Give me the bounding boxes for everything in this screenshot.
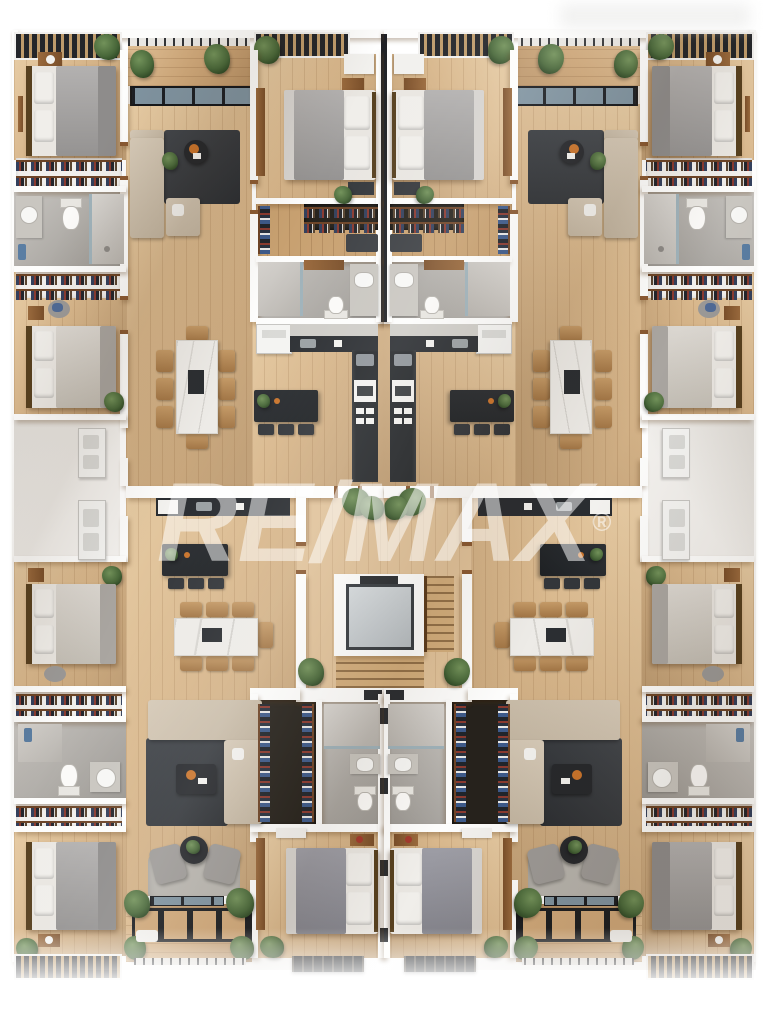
hanging-clothes xyxy=(16,274,122,285)
stove-burner xyxy=(356,408,364,414)
dining-chair xyxy=(566,656,588,671)
counter-item xyxy=(426,340,434,347)
wall xyxy=(14,186,126,192)
unit-separation-line xyxy=(384,34,387,322)
book xyxy=(193,153,201,159)
appliance-door xyxy=(482,330,506,338)
stove-burner xyxy=(394,408,402,414)
coffee-table xyxy=(552,764,592,794)
bar-stool xyxy=(278,424,294,435)
registered-trademark-symbol: ® xyxy=(592,507,611,538)
closet-shelf xyxy=(646,272,752,298)
potted-plant xyxy=(204,44,230,74)
nightstand xyxy=(28,306,44,320)
shower-drain xyxy=(104,246,110,252)
pillow xyxy=(346,853,372,886)
kitchen-sink xyxy=(452,339,468,348)
toilet xyxy=(690,764,708,788)
shower-glass xyxy=(324,746,380,749)
wall xyxy=(640,50,648,146)
bed xyxy=(652,326,742,408)
pillow xyxy=(34,885,54,916)
hanging-clothes xyxy=(646,289,752,300)
bathroom-shelf xyxy=(424,260,464,270)
toilet xyxy=(424,296,440,314)
floor-plan-render: { "image": { "kind": "3d-top-down-floor-… xyxy=(0,0,768,1024)
book xyxy=(561,778,570,784)
dining-chair xyxy=(495,622,510,648)
bar-stool xyxy=(494,424,510,435)
book xyxy=(198,778,207,784)
dining-chair xyxy=(218,350,235,372)
clothes-rack xyxy=(498,206,510,254)
pillow xyxy=(584,204,596,216)
hanging-clothes xyxy=(390,222,464,233)
door-jamb xyxy=(510,210,518,214)
door-jamb xyxy=(120,176,128,180)
table-centerpiece xyxy=(188,370,204,394)
potted-plant xyxy=(162,152,178,170)
dining-chair xyxy=(232,656,254,671)
duvet xyxy=(422,848,472,934)
dining-chair xyxy=(206,656,228,671)
balcony-pergola-slats xyxy=(14,954,122,980)
dining-chair xyxy=(560,326,582,341)
kitchen-backsplash xyxy=(390,324,478,336)
bed xyxy=(652,584,742,664)
shower-glass xyxy=(465,262,468,316)
pillow xyxy=(344,96,370,130)
towel xyxy=(736,728,744,742)
towel xyxy=(24,728,32,742)
lamp xyxy=(715,936,723,944)
dining-chair xyxy=(156,406,173,428)
pillow xyxy=(524,748,536,760)
shower-drain xyxy=(658,246,664,252)
hanging-clothes xyxy=(304,222,378,233)
dining-chair xyxy=(218,378,235,400)
potted-plant xyxy=(94,34,120,60)
sink xyxy=(394,757,412,772)
toilet xyxy=(62,206,80,230)
toilet xyxy=(688,206,706,230)
sofa xyxy=(130,138,164,238)
kitchen-sink xyxy=(394,354,412,366)
closet-shelf xyxy=(646,158,752,188)
pouf xyxy=(702,666,724,682)
closet-bench xyxy=(390,234,422,252)
toilet xyxy=(357,792,373,811)
decor-item xyxy=(356,836,363,843)
potted-plant xyxy=(130,50,154,78)
hanging-clothes xyxy=(646,160,752,171)
decor-bowl xyxy=(488,398,494,404)
pillow xyxy=(34,331,54,361)
pillow xyxy=(34,589,54,618)
decor-bowl xyxy=(274,398,280,404)
headboard xyxy=(736,326,742,408)
door-jamb xyxy=(120,142,128,146)
hanging-clothes xyxy=(16,289,122,300)
sink xyxy=(96,768,116,788)
stove-burner xyxy=(356,418,364,424)
stove-burner xyxy=(366,408,374,414)
toilet xyxy=(60,764,78,788)
door-frame-mark xyxy=(384,860,388,876)
clothes-rack xyxy=(390,204,464,230)
dining-chair xyxy=(533,350,550,372)
bed xyxy=(26,584,116,664)
potted-plant xyxy=(260,936,284,958)
potted-plant xyxy=(124,890,150,918)
clothes-pile xyxy=(705,303,716,312)
dining-chair xyxy=(156,378,173,400)
headboard xyxy=(372,92,376,178)
pouf xyxy=(44,666,66,682)
dining-chair xyxy=(540,656,562,671)
door-jamb xyxy=(120,330,128,334)
door-jamb xyxy=(640,330,648,334)
pillow xyxy=(34,848,54,879)
potted-plant xyxy=(230,936,254,960)
glass-sliding-door xyxy=(544,896,618,906)
dining-chair xyxy=(533,406,550,428)
headboard xyxy=(736,66,742,156)
balcony-pergola-slats xyxy=(646,954,754,980)
hanging-clothes xyxy=(646,694,752,705)
balcony-bench xyxy=(136,930,158,942)
pillow xyxy=(714,72,734,104)
bed xyxy=(392,90,484,180)
shower xyxy=(258,262,300,316)
kitchen-sink xyxy=(300,339,316,348)
hanging-clothes xyxy=(646,806,752,817)
pillow xyxy=(714,110,734,142)
wall xyxy=(14,686,126,692)
sofa xyxy=(148,700,262,740)
clothes-rack xyxy=(304,204,378,230)
clothes-rack xyxy=(454,704,466,822)
wall xyxy=(642,266,754,272)
clothes-rack xyxy=(258,206,270,254)
pillow xyxy=(714,625,734,654)
headboard xyxy=(26,326,32,408)
decor-bowl xyxy=(186,770,196,780)
towel xyxy=(742,244,750,260)
pillow xyxy=(346,892,372,925)
sink xyxy=(20,206,38,224)
dining-chair xyxy=(514,602,536,617)
wall xyxy=(642,686,754,692)
door-jamb xyxy=(640,176,648,180)
closet-shelf xyxy=(646,804,752,828)
closet-shelf xyxy=(646,692,752,718)
dining-chair xyxy=(258,622,273,648)
pillow xyxy=(714,368,734,398)
dresser xyxy=(276,828,306,838)
shower xyxy=(644,194,676,264)
headboard xyxy=(26,842,32,930)
wardrobe xyxy=(256,88,265,176)
sofa xyxy=(604,138,638,238)
hanging-clothes xyxy=(16,694,122,705)
dining-chair xyxy=(156,350,173,372)
background-smudge xyxy=(560,4,750,28)
bed xyxy=(390,848,482,934)
glass-sliding-door xyxy=(130,86,252,106)
kitchen-island xyxy=(450,390,514,422)
lamp xyxy=(713,55,722,64)
hanging-clothes xyxy=(16,806,122,817)
bed xyxy=(26,66,116,156)
balcony-railing xyxy=(128,38,250,46)
closet-shelf xyxy=(16,804,122,828)
dining-chair xyxy=(186,434,208,449)
closet-bench xyxy=(346,234,378,252)
watermark-text: RE/MAX xyxy=(157,458,593,587)
pillow xyxy=(232,748,244,760)
headboard xyxy=(374,850,378,932)
bench xyxy=(745,96,750,132)
wall xyxy=(14,414,126,420)
wall xyxy=(510,210,518,322)
door-frame-mark xyxy=(384,778,388,794)
sink xyxy=(354,272,374,288)
clothes-rack xyxy=(258,704,270,822)
potted-plant xyxy=(298,658,324,686)
bed xyxy=(652,842,742,930)
door-frame-mark xyxy=(384,928,388,942)
shower-glass xyxy=(388,746,444,749)
balcony-railing xyxy=(518,38,640,46)
bed xyxy=(284,90,376,180)
wall xyxy=(642,414,754,420)
clothes-rack xyxy=(498,704,510,822)
hanging-clothes xyxy=(646,274,752,285)
wardrobe xyxy=(256,838,265,930)
stove-burner xyxy=(394,418,402,424)
wall xyxy=(250,824,384,832)
clothes-pile xyxy=(52,303,63,312)
door-jamb xyxy=(250,210,258,214)
door-jamb xyxy=(250,180,258,184)
bed xyxy=(652,66,742,156)
hanging-clothes xyxy=(16,160,122,171)
toilet-tank xyxy=(58,786,80,796)
shower-glass xyxy=(89,194,92,264)
pillow xyxy=(714,589,734,618)
bed xyxy=(286,848,378,934)
duvet xyxy=(294,90,344,180)
staircase xyxy=(336,654,424,688)
shower xyxy=(324,704,380,746)
door-jamb xyxy=(640,142,648,146)
plant-on-island xyxy=(257,394,270,408)
table-centerpiece xyxy=(546,628,566,642)
wardrobe xyxy=(503,88,512,176)
juliet-balcony-glazing xyxy=(404,956,476,972)
dresser xyxy=(344,54,374,74)
stove-burner xyxy=(366,418,374,424)
appliance-door xyxy=(669,435,685,449)
door-jamb xyxy=(640,296,648,300)
potted-plant xyxy=(226,888,254,918)
glass-sliding-door xyxy=(150,896,224,906)
appliance-door xyxy=(262,330,286,338)
dining-chair xyxy=(533,378,550,400)
closet-shelf xyxy=(16,692,122,718)
oven-window xyxy=(395,386,411,396)
door-jamb xyxy=(510,180,518,184)
sink xyxy=(356,757,374,772)
bed xyxy=(26,326,116,408)
plant-on-table xyxy=(186,840,200,854)
plant-on-island xyxy=(498,394,511,408)
nightstand xyxy=(724,306,740,320)
bar-stool xyxy=(298,424,314,435)
dresser xyxy=(394,54,424,74)
balcony-bench xyxy=(610,930,632,942)
wardrobe xyxy=(503,838,512,930)
stove-burner xyxy=(404,408,412,414)
shower-glass xyxy=(300,262,303,316)
pillow xyxy=(398,136,424,170)
toilet xyxy=(395,792,411,811)
lamp xyxy=(45,936,53,944)
dining-chair xyxy=(232,602,254,617)
counter-item xyxy=(334,340,342,347)
coffee-table xyxy=(176,764,216,794)
bar-stool xyxy=(474,424,490,435)
book xyxy=(567,153,575,159)
duvet xyxy=(296,848,346,934)
shower xyxy=(468,262,510,316)
refrigerator xyxy=(256,324,292,354)
table-centerpiece xyxy=(564,370,580,394)
remax-watermark: RE/MAX® xyxy=(0,452,768,592)
pillow xyxy=(396,892,422,925)
pillow xyxy=(34,625,54,654)
glass-sliding-door xyxy=(516,86,638,106)
decor-item xyxy=(405,836,412,843)
dining-chair xyxy=(514,656,536,671)
wall xyxy=(642,716,754,722)
clothes-rack xyxy=(302,704,314,822)
table-centerpiece xyxy=(202,628,222,642)
bar-stool xyxy=(454,424,470,435)
dining-chair xyxy=(186,326,208,341)
sink xyxy=(652,768,672,788)
wall xyxy=(14,716,126,722)
kitchen-backsplash xyxy=(290,324,378,336)
dresser xyxy=(462,828,492,838)
wall xyxy=(642,826,754,832)
balcony-railing xyxy=(134,958,246,965)
sofa xyxy=(506,700,620,740)
closet-shelf xyxy=(16,272,122,298)
shower xyxy=(388,704,444,746)
bar-stool xyxy=(258,424,274,435)
lamp xyxy=(46,55,55,64)
folded-blanket xyxy=(98,66,116,156)
stove-burner xyxy=(404,418,412,424)
pillow xyxy=(396,853,422,886)
appliance-door xyxy=(83,435,99,449)
headboard xyxy=(392,92,396,178)
bathroom-shelf xyxy=(304,260,344,270)
ottoman xyxy=(166,198,200,236)
dining-chair xyxy=(180,602,202,617)
pillow xyxy=(172,204,184,216)
juliet-balcony-glazing xyxy=(292,956,364,972)
door-jamb xyxy=(120,296,128,300)
folded-blanket xyxy=(98,842,116,930)
headboard xyxy=(736,842,742,930)
wall xyxy=(642,798,754,804)
pillow xyxy=(34,368,54,398)
shower xyxy=(92,194,124,264)
dining-chair xyxy=(218,406,235,428)
toilet-tank xyxy=(688,786,710,796)
kitchen-sink xyxy=(356,354,374,366)
wall xyxy=(250,210,258,322)
headboard xyxy=(390,850,394,932)
dining-chair xyxy=(595,350,612,372)
shower-glass xyxy=(676,194,679,264)
wall xyxy=(384,824,518,832)
pillow xyxy=(34,110,54,142)
headboard xyxy=(26,66,32,156)
potted-plant xyxy=(334,186,352,204)
folded-blanket xyxy=(652,842,670,930)
headboard xyxy=(736,584,742,664)
closet-shelf xyxy=(16,158,122,188)
pillow xyxy=(714,885,734,916)
pillow xyxy=(344,136,370,170)
pillow xyxy=(34,72,54,104)
hanging-clothes xyxy=(304,207,378,218)
hanging-clothes xyxy=(390,207,464,218)
potted-plant xyxy=(104,392,124,412)
wall xyxy=(446,700,452,826)
pillow xyxy=(398,96,424,130)
dining-chair xyxy=(206,602,228,617)
toilet xyxy=(328,296,344,314)
dining-chair xyxy=(595,406,612,428)
pillow xyxy=(714,848,734,879)
dining-chair xyxy=(566,602,588,617)
decor-bowl xyxy=(572,770,582,780)
sink xyxy=(730,206,748,224)
oven-window xyxy=(357,386,373,396)
elevator-car xyxy=(346,584,414,650)
wall xyxy=(14,798,126,804)
wall xyxy=(14,826,126,832)
dining-chair xyxy=(560,434,582,449)
dining-chair xyxy=(540,602,562,617)
dining-chair xyxy=(180,656,202,671)
refrigerator xyxy=(476,324,512,354)
headboard xyxy=(26,584,32,664)
sink xyxy=(394,272,414,288)
pillow xyxy=(714,331,734,361)
dining-chair xyxy=(595,378,612,400)
towel xyxy=(18,244,26,260)
wall xyxy=(316,700,322,826)
balcony-railing xyxy=(522,958,634,965)
folded-blanket xyxy=(652,66,670,156)
bench xyxy=(18,96,23,132)
